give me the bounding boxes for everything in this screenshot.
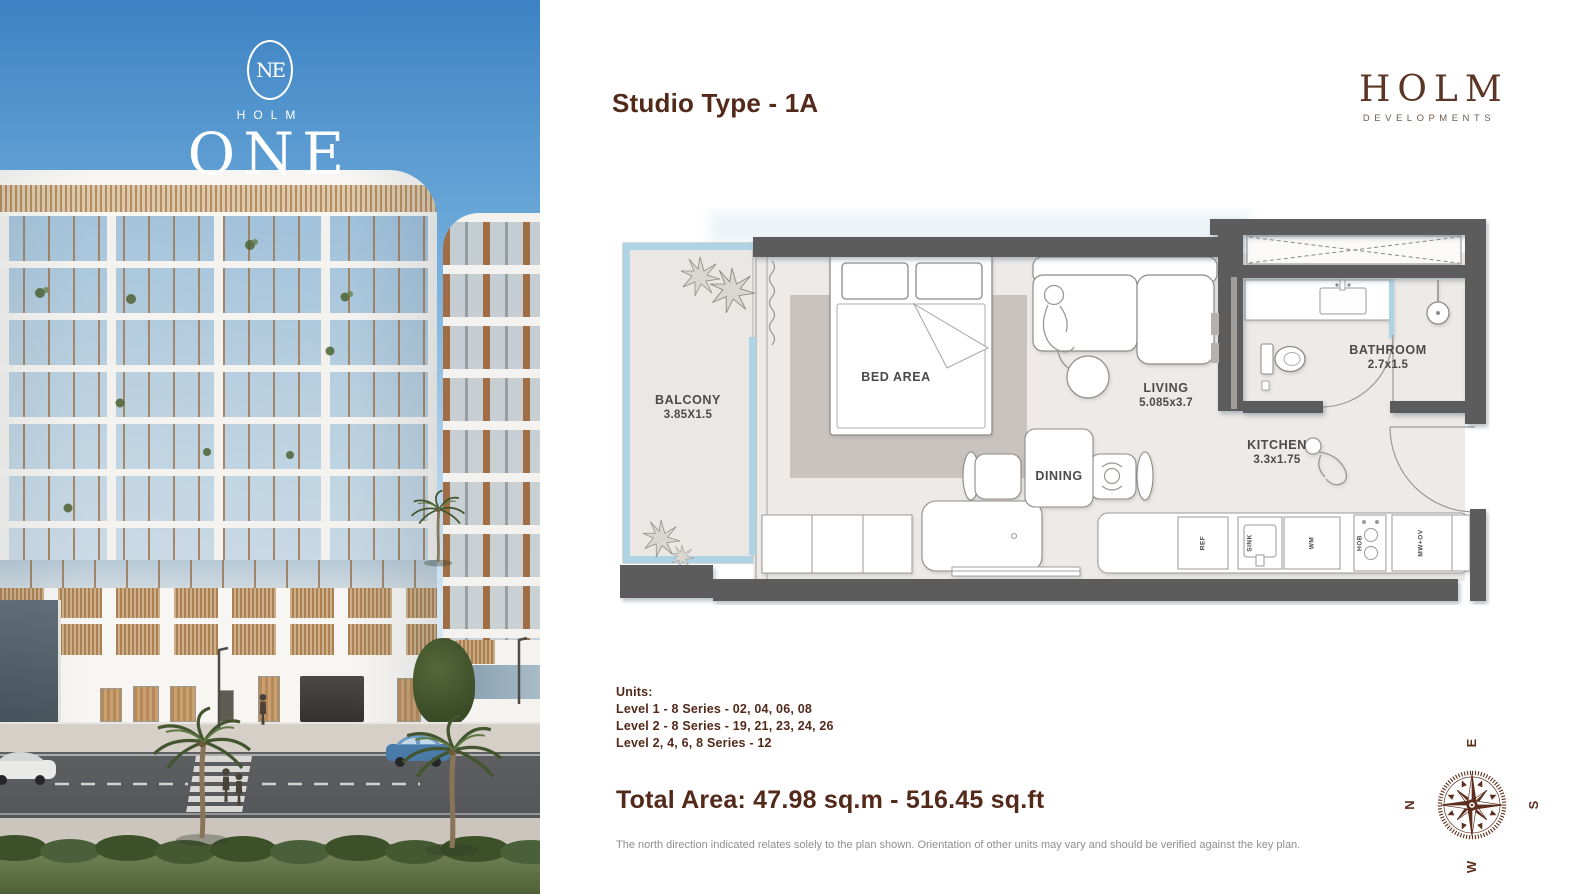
holm-one-logo: NE HOLM ONE xyxy=(0,40,540,185)
compass-rose xyxy=(1430,763,1514,847)
closet xyxy=(1247,236,1461,264)
developer-logo: HOLM DEVELOPMENTS xyxy=(1352,70,1502,124)
units-heading: Units: xyxy=(616,684,834,701)
compass-letter-w: W xyxy=(1463,858,1481,876)
washbasin xyxy=(1320,288,1366,314)
tv-console xyxy=(952,567,1080,576)
appliance-label-ref: REF xyxy=(1200,536,1207,551)
units-list: Units: Level 1 - 8 Series - 02, 04, 06, … xyxy=(616,684,834,752)
brochure-page: NE HOLM ONE Studio Type - 1A HOLM DEVELO… xyxy=(0,0,1588,894)
floor-plan: BALCONY 3.85X1.5 BED AREA LIVING 5.085x3… xyxy=(620,205,1490,605)
page-title: Studio Type - 1A xyxy=(612,88,818,119)
holm-one-monogram: NE xyxy=(247,40,293,100)
appliance-label-hob: HOB xyxy=(1357,535,1364,551)
appliance-label-sink: SINK xyxy=(1247,534,1254,552)
bed xyxy=(830,255,992,435)
shower-glass xyxy=(1389,280,1394,338)
developer-logo-name: HOLM xyxy=(1359,70,1502,110)
tall-cabinet xyxy=(1452,515,1470,571)
sink-faucet xyxy=(1256,555,1264,566)
compass-letter-e: E xyxy=(1463,734,1481,752)
toilet-tank xyxy=(1261,344,1273,374)
wardrobe-cabinets xyxy=(762,515,912,573)
room-label-bathroom: BATHROOM 2.7x1.5 xyxy=(1325,343,1451,373)
crosswalk xyxy=(186,756,252,812)
palm-tree xyxy=(412,491,465,567)
room-label-living: LIVING 5.085x3.7 xyxy=(1101,381,1231,411)
developer-logo-tagline: DEVELOPMENTS xyxy=(1356,113,1502,124)
basin-faucet xyxy=(1340,280,1345,290)
compass-letter-s: S xyxy=(1525,796,1543,814)
compass-letter-n: N xyxy=(1401,796,1419,814)
room-label-bed-area: BED AREA xyxy=(826,370,966,385)
holm-one-logo-word: ONE xyxy=(0,124,540,185)
room-label-dining: DINING xyxy=(1000,469,1118,484)
car-white xyxy=(0,752,56,785)
road-markings xyxy=(0,755,540,814)
total-area: Total Area: 47.98 sq.m - 516.45 sq.ft xyxy=(616,786,1044,815)
units-line: Level 2, 4, 6, 8 Series - 12 xyxy=(616,735,834,752)
compass-rose-icon xyxy=(1430,763,1514,847)
balcony-plants xyxy=(35,240,350,513)
appliance-label-mwov: MW+OV xyxy=(1418,529,1425,556)
vanity-counter xyxy=(1245,280,1393,320)
units-line: Level 2 - 8 Series - 19, 21, 23, 24, 26 xyxy=(616,718,834,735)
room-label-balcony: BALCONY 3.85X1.5 xyxy=(628,393,748,423)
kitchen-counter xyxy=(1098,513,1470,573)
north-disclaimer: The north direction indicated relates so… xyxy=(616,839,1376,851)
lamp-post xyxy=(219,638,527,730)
room-label-kitchen: KITCHEN 3.3x1.75 xyxy=(1212,438,1342,468)
building-render-photo: NE HOLM ONE xyxy=(0,0,540,894)
appliance-label-wm: WM xyxy=(1309,537,1316,550)
pedestrian xyxy=(260,694,267,725)
sofa xyxy=(1033,257,1217,364)
units-line: Level 1 - 8 Series - 02, 04, 06, 08 xyxy=(616,701,834,718)
